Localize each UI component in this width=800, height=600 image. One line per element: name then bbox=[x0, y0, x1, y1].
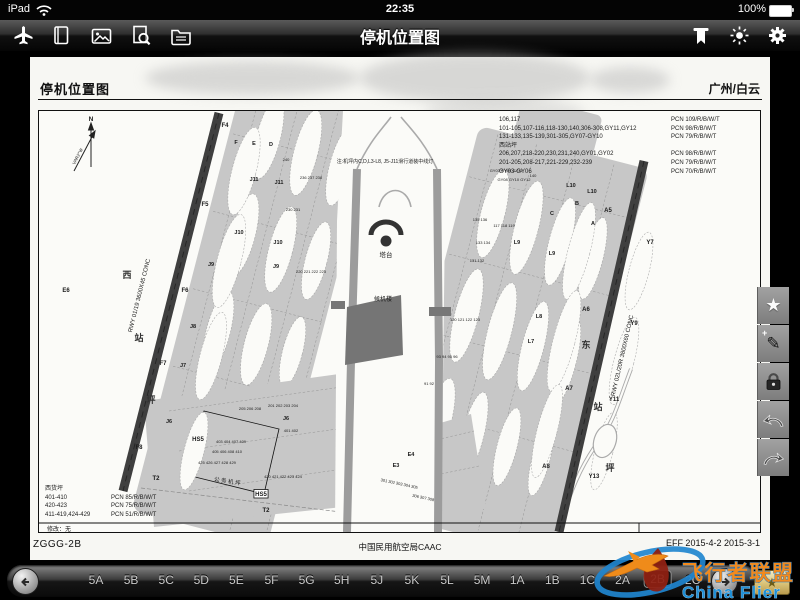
chart-label: Y7 bbox=[646, 240, 654, 246]
pcn-value: PCN 79/R/B/W/T bbox=[671, 133, 716, 142]
pcn-row: GY03-GY06PCN 70/R/B/W/T bbox=[499, 168, 757, 177]
pcn-value: PCN 98/R/B/W/T bbox=[671, 150, 716, 159]
chart-label: 135 136 bbox=[473, 217, 488, 222]
favorite-button[interactable]: ★ bbox=[757, 287, 789, 324]
pcn-value: PCN 109/R/B/W/T bbox=[671, 116, 720, 125]
tab-5K[interactable]: 5K bbox=[405, 573, 420, 587]
chart-label: 93 94 95 96 bbox=[436, 354, 458, 359]
chart-title: 停机位置图 bbox=[40, 79, 110, 98]
pcn-value: PCN 79/R/B/W/T bbox=[671, 159, 716, 168]
chart-label: 420 421 422 423 424 bbox=[264, 474, 303, 479]
chart-label: 205 206 208 bbox=[239, 406, 262, 411]
tab-5D[interactable]: 5D bbox=[194, 573, 209, 587]
smudge bbox=[145, 61, 360, 95]
pcn-value: PCN 70/R/B/W/T bbox=[671, 168, 716, 177]
chart-label: 220 221 222 223 bbox=[296, 269, 327, 274]
chart-label: A8 bbox=[542, 464, 550, 470]
smudge bbox=[590, 67, 670, 93]
east-road bbox=[437, 169, 439, 532]
pcn-heading: 西货坪 bbox=[45, 485, 235, 494]
chart-label: A5 bbox=[604, 208, 612, 214]
tab-5G[interactable]: 5G bbox=[299, 573, 315, 587]
chart-airport: 广州/白云 bbox=[709, 80, 760, 97]
tab-5J[interactable]: 5J bbox=[370, 573, 383, 587]
left-arrow-icon bbox=[19, 575, 33, 589]
pcn-stands: 420-423 bbox=[45, 502, 111, 511]
lock-icon bbox=[765, 372, 782, 391]
chart-label: 236 237 238 bbox=[300, 175, 323, 180]
chart-label: J8 bbox=[190, 324, 196, 330]
chart-label: A7 bbox=[565, 386, 573, 392]
star-icon: ★ bbox=[765, 295, 781, 316]
pcn-value: PCN 75/R/B/W/T bbox=[111, 502, 156, 511]
chart-label: L9 bbox=[514, 240, 520, 246]
pcn-stands: 201-205,208-217,221-229,232-239 bbox=[499, 159, 671, 168]
pcn-stands: 206,207,218-220,230,231,240,GY01,GY02 bbox=[499, 150, 671, 159]
chart-label: J11 bbox=[250, 177, 259, 183]
pcn-row: 206,207,218-220,230,231,240,GY01,GY02PCN… bbox=[499, 150, 757, 159]
pcn-row: 101-105,107-116,118-130,140,306-308,GY11… bbox=[499, 125, 757, 134]
chart-label: HS5 bbox=[255, 492, 267, 498]
pcn-value: PCN 98/R/B/W/T bbox=[671, 125, 716, 134]
page-title: 停机位置图 bbox=[0, 24, 800, 48]
chart-label: 230 231 bbox=[286, 207, 301, 212]
chart-label: Y9 bbox=[630, 321, 638, 327]
ribbon-icon[interactable] bbox=[688, 23, 714, 48]
pcn-stands: 106,117 bbox=[499, 116, 671, 125]
chart-label: F5 bbox=[201, 202, 209, 208]
pcn-row: 201-205,208-217,221-229,232-239PCN 79/R/… bbox=[499, 159, 757, 168]
pencil-icon: ✎ bbox=[766, 334, 780, 354]
tab-1A[interactable]: 1A bbox=[510, 573, 525, 587]
pcn-value: PCN 85/R/B/W/T bbox=[111, 494, 156, 503]
pcn-row: 401-410PCN 85/R/B/W/T bbox=[45, 494, 235, 503]
chart-label: 站 bbox=[134, 332, 143, 343]
chart-label: F4 bbox=[221, 123, 229, 129]
chart-label: 坪 bbox=[146, 394, 155, 405]
moon-icon[interactable] bbox=[648, 23, 674, 48]
chart-label: 候机楼 bbox=[374, 295, 392, 303]
chart-label: 东 bbox=[581, 339, 590, 350]
tab-5A[interactable]: 5A bbox=[89, 573, 104, 587]
chart-label: 坪 bbox=[605, 462, 614, 473]
lock-button[interactable] bbox=[757, 363, 789, 400]
bottom-tab-bar: 5A5B5C5D5E5F5G5H5J5K5L5M1A1B1C2A2B2C bbox=[6, 564, 758, 598]
west-bridge bbox=[331, 301, 345, 309]
chart-frame: NVAR2°W注:机坪内C,D,L3-L8, J5-J11滑行道装中线灯RWY … bbox=[38, 110, 761, 533]
chart-label: T2 bbox=[262, 508, 270, 514]
status-bar: iPad 22:35 100% bbox=[0, 0, 800, 20]
redo-button[interactable] bbox=[757, 439, 789, 476]
clock: 22:35 bbox=[0, 3, 800, 15]
pcn-stands: 401-410 bbox=[45, 494, 111, 503]
chart-label: 西 bbox=[122, 270, 131, 280]
tab-2B[interactable]: 2B bbox=[643, 570, 672, 588]
tab-5M[interactable]: 5M bbox=[474, 573, 491, 587]
brightness-icon[interactable] bbox=[726, 23, 752, 48]
pcn-row: 411-419,424-429PCN 51/R/B/W/T bbox=[45, 511, 235, 520]
chart-label: L7 bbox=[528, 339, 534, 345]
chart-label: E4 bbox=[408, 452, 416, 458]
chart-label: J9 bbox=[208, 262, 214, 268]
pcn-table-bottom: 西货坪401-410PCN 85/R/B/W/T420-423PCN 75/R/… bbox=[45, 485, 235, 519]
chart-label: J11 bbox=[275, 180, 284, 186]
tab-1C[interactable]: 1C bbox=[580, 573, 595, 587]
tab-1B[interactable]: 1B bbox=[545, 573, 560, 587]
smudge bbox=[360, 53, 590, 103]
tab-5L[interactable]: 5L bbox=[440, 573, 453, 587]
chart-label: A6 bbox=[582, 307, 590, 313]
chart-label: D bbox=[269, 142, 273, 148]
tab-2A[interactable]: 2A bbox=[615, 573, 630, 587]
side-toolbar: ★ + ✎ bbox=[757, 287, 789, 477]
pcn-row: 420-423PCN 75/R/B/W/T bbox=[45, 502, 235, 511]
chart-label: 注:机坪内C,D,L3-L8, J5-J11滑行道装中线灯 bbox=[337, 158, 434, 165]
nav-bar: 停机位置图 bbox=[0, 20, 800, 52]
tab-5B[interactable]: 5B bbox=[124, 573, 139, 587]
chart-label: 201 202 203 204 bbox=[268, 403, 299, 408]
battery-icon bbox=[769, 5, 792, 17]
chart-label: B bbox=[575, 201, 579, 207]
chart-label: HS5 bbox=[192, 437, 204, 443]
chart-label: 站 bbox=[593, 401, 602, 412]
chart-label: 133 134 bbox=[476, 240, 491, 245]
tab-5H[interactable]: 5H bbox=[334, 573, 349, 587]
pcn-stands: 131-133,135-139,301-305,GY07-GY10 bbox=[499, 133, 671, 142]
chart-label: 修改：无 bbox=[47, 525, 71, 532]
chart-label: F6 bbox=[181, 288, 189, 294]
pcn-value: PCN 51/R/B/W/T bbox=[111, 511, 156, 520]
chart-label: F8 bbox=[135, 445, 143, 451]
redo-arrow-icon bbox=[762, 449, 785, 466]
favorites-folder-button[interactable]: ★ bbox=[754, 570, 790, 595]
chart-label: 131 132 bbox=[470, 258, 485, 263]
pcn-table-top: 106,117PCN 109/R/B/W/T101-105,107-116,11… bbox=[499, 116, 757, 176]
chart-label: 401 402 bbox=[284, 428, 299, 433]
chart-label: E3 bbox=[393, 463, 400, 469]
chart-label: F7 bbox=[159, 361, 167, 367]
chart-label: 塔台 bbox=[380, 250, 393, 259]
battery-percent: 100% bbox=[738, 3, 766, 15]
pcn-stands: 411-419,424-429 bbox=[45, 511, 111, 520]
pcn-stands: 西站坪 bbox=[499, 142, 671, 151]
tower-dot bbox=[381, 236, 392, 247]
folder-star-icon: ★ bbox=[766, 575, 778, 591]
content-area: 停机位置图 广州/白云 bbox=[0, 51, 800, 600]
chart-label: N bbox=[89, 116, 94, 123]
chart-label: Y13 bbox=[589, 474, 600, 480]
authority: 中国民用航空局CAAC bbox=[30, 541, 770, 553]
chart-label: 405 406 408 410 bbox=[212, 449, 243, 454]
chart-label: 403 404 407 409 bbox=[216, 439, 247, 444]
chart-label: 117 118 119 bbox=[493, 223, 515, 228]
chart-label: J9 bbox=[273, 264, 279, 270]
chart-label: L10 bbox=[587, 189, 596, 195]
chart-label: 120 121 122 123 bbox=[450, 317, 481, 322]
plus-icon: + bbox=[762, 328, 767, 338]
chart-label: L8 bbox=[536, 314, 542, 320]
chart-label: A bbox=[591, 221, 595, 227]
chart-label: T2 bbox=[152, 476, 160, 482]
chart-label: E6 bbox=[62, 288, 70, 294]
undo-arrow-icon bbox=[762, 411, 785, 428]
annotate-button[interactable]: + ✎ bbox=[757, 325, 789, 362]
tab-5F[interactable]: 5F bbox=[264, 573, 278, 587]
prev-page-button[interactable] bbox=[12, 568, 39, 595]
chart-label: J6 bbox=[283, 416, 289, 422]
effective-date: EFF 2015-4-2 2015-3-1 bbox=[666, 538, 760, 548]
next-page-button[interactable] bbox=[711, 568, 738, 595]
chart-label: C bbox=[550, 211, 554, 217]
chart-label: J7 bbox=[180, 363, 186, 369]
chart-label: E bbox=[252, 141, 256, 147]
chart-label: L9 bbox=[549, 251, 555, 257]
chart-label: 425 426 427 428 429 bbox=[198, 460, 237, 465]
pcn-stands: GY03-GY06 bbox=[499, 168, 671, 177]
settings-gear-icon[interactable] bbox=[764, 23, 790, 48]
chart-label: J10 bbox=[234, 230, 243, 236]
chart-page: 停机位置图 广州/白云 bbox=[30, 57, 770, 560]
tab-5E[interactable]: 5E bbox=[229, 573, 244, 587]
chart-label: GY08 GY10 GY12 bbox=[498, 177, 532, 182]
pcn-stands: 101-105,107-116,118-130,140,306-308,GY11… bbox=[499, 125, 671, 134]
right-arrow-icon bbox=[718, 575, 732, 589]
chart-label: L10 bbox=[566, 183, 575, 189]
tab-2C[interactable]: 2C bbox=[685, 573, 700, 587]
chart-label: 240 bbox=[283, 157, 290, 162]
chart-label: Y11 bbox=[609, 397, 620, 403]
east-bridge bbox=[429, 307, 451, 316]
chart-label: J6 bbox=[166, 419, 172, 425]
chart-label: 91 92 bbox=[424, 381, 435, 386]
pcn-row: 西站坪 bbox=[499, 142, 757, 151]
tab-5C[interactable]: 5C bbox=[159, 573, 174, 587]
header-rule bbox=[38, 99, 762, 100]
undo-button[interactable] bbox=[757, 401, 789, 438]
chart-label: J10 bbox=[273, 240, 282, 246]
pcn-row: 106,117PCN 109/R/B/W/T bbox=[499, 116, 757, 125]
pcn-row: 131-133,135-139,301-305,GY07-GY10PCN 79/… bbox=[499, 133, 757, 142]
